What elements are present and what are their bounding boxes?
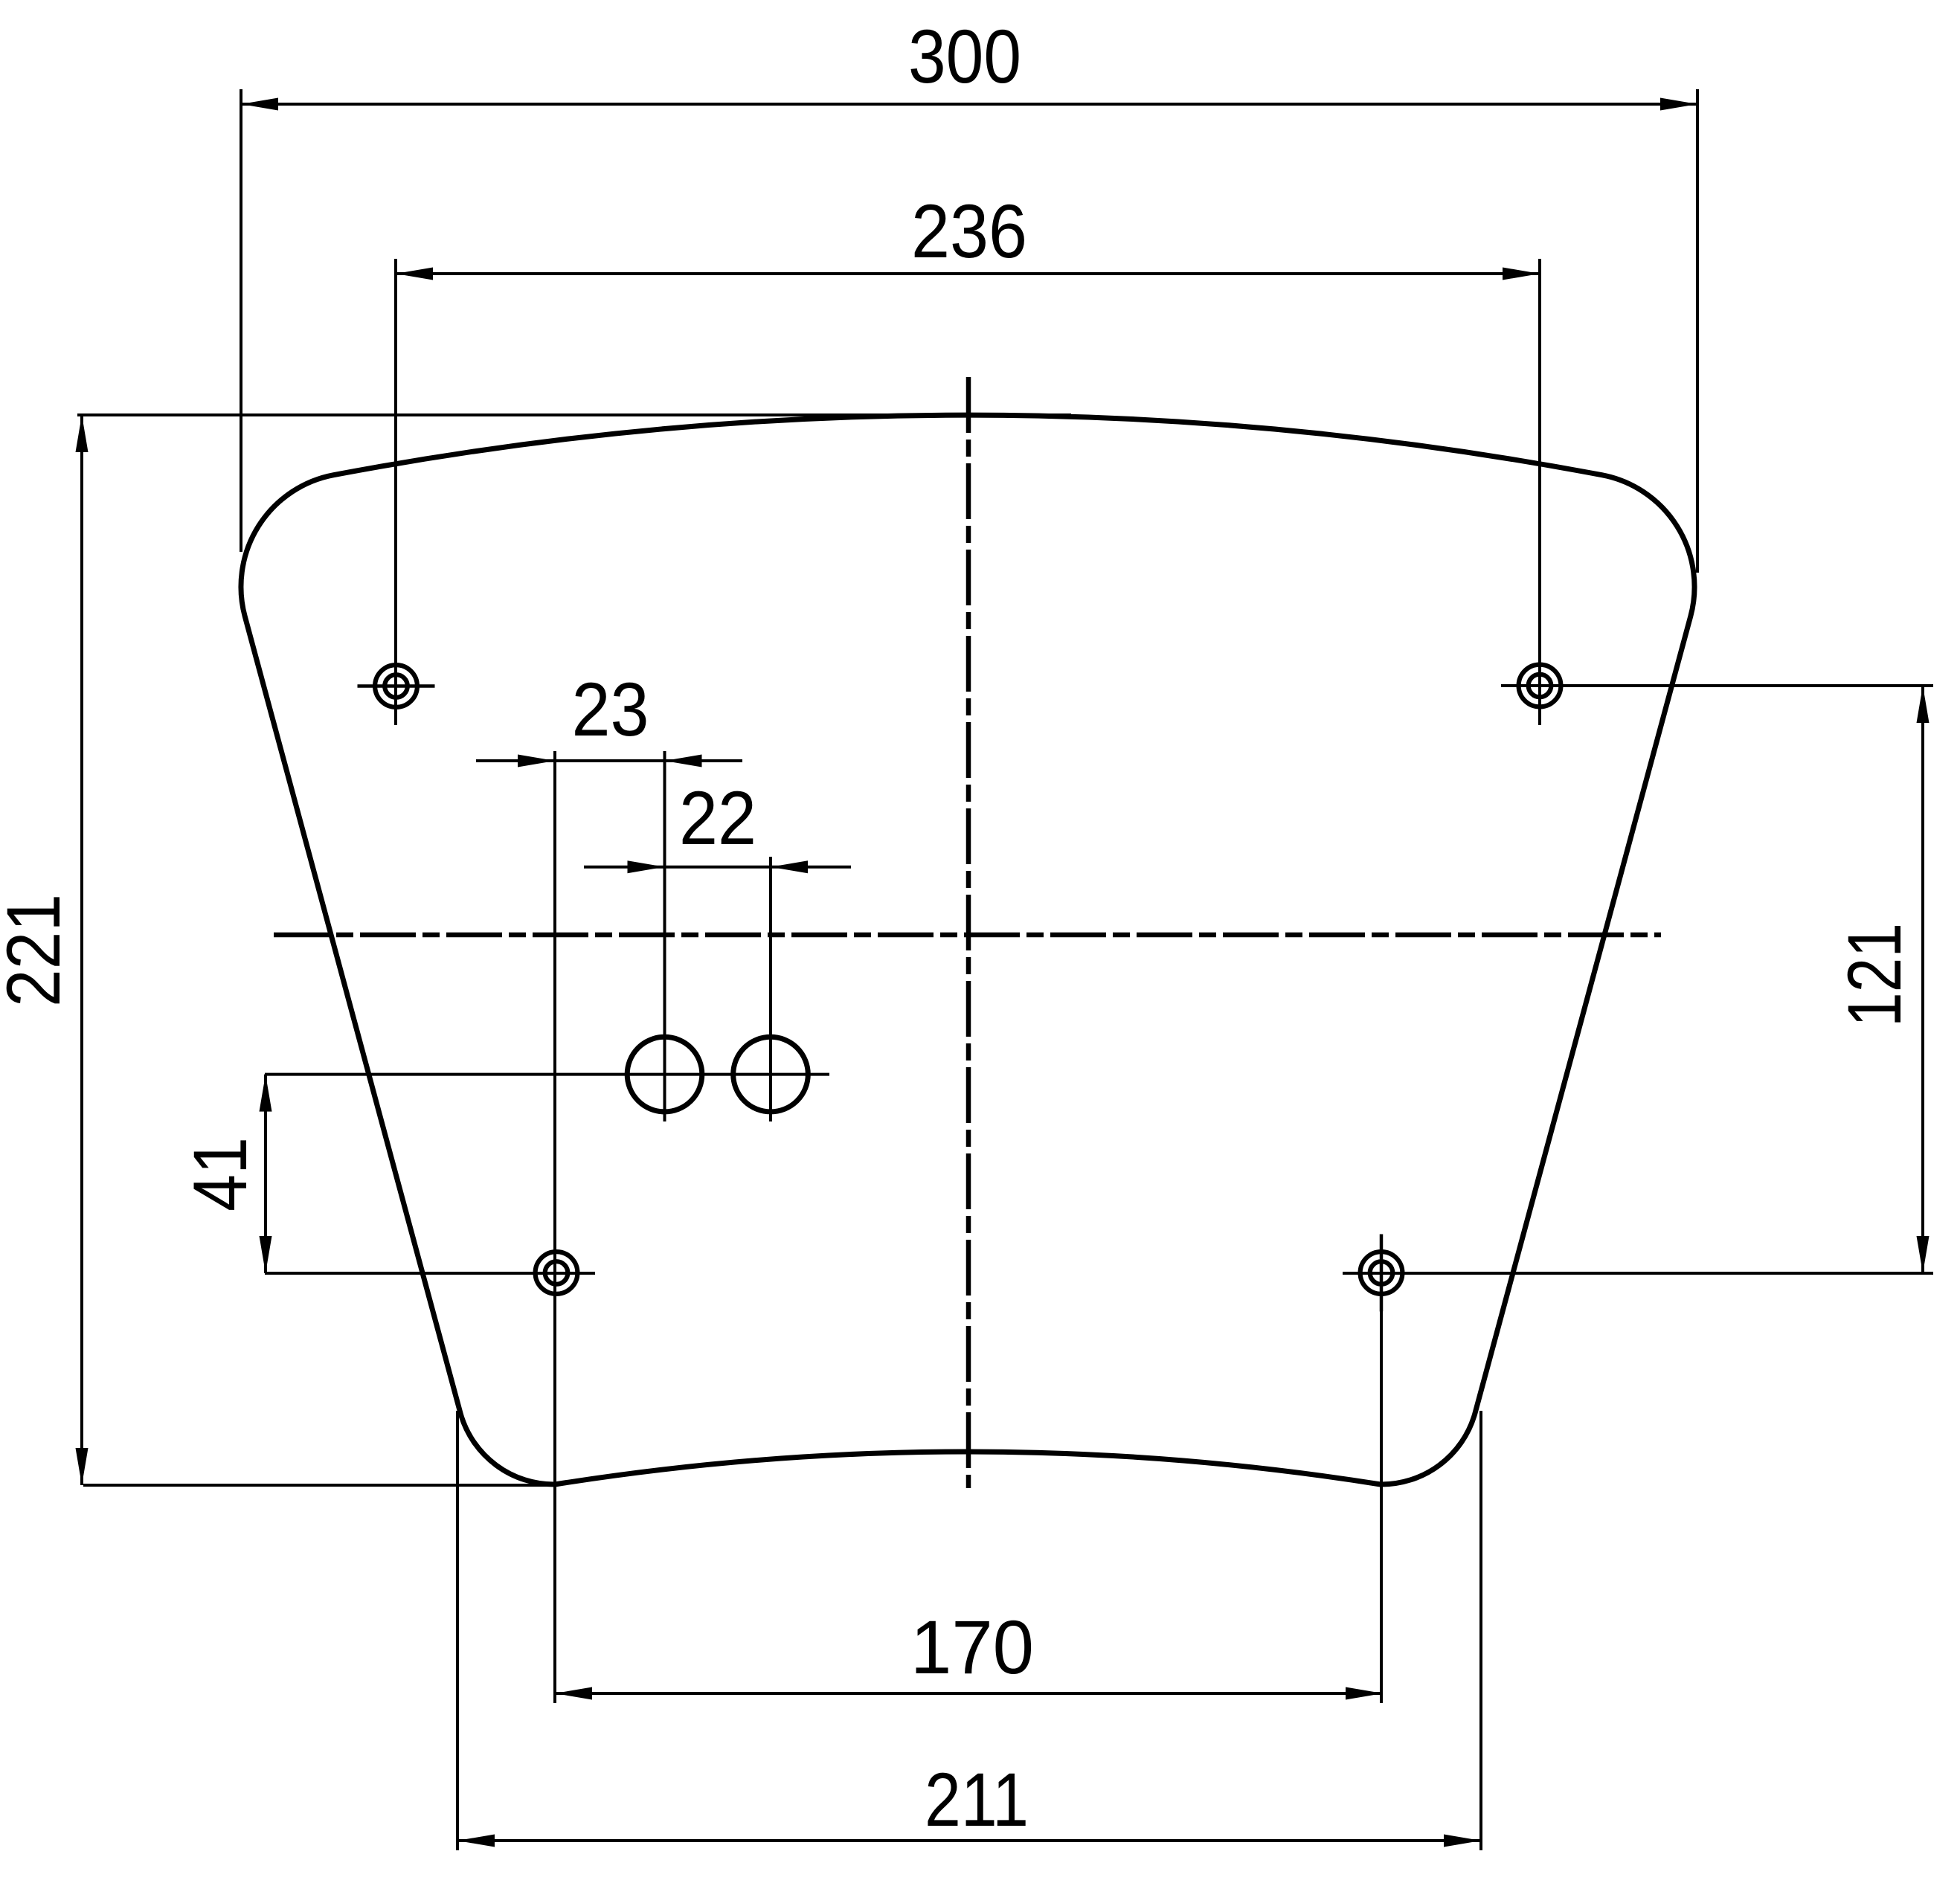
svg-text:211: 211	[925, 1757, 1029, 1842]
svg-text:300: 300	[908, 14, 1021, 99]
svg-text:221: 221	[0, 894, 76, 1007]
svg-text:41: 41	[178, 1137, 263, 1211]
svg-text:236: 236	[911, 189, 1027, 274]
svg-text:170: 170	[910, 1605, 1034, 1690]
svg-text:121: 121	[1832, 923, 1917, 1027]
svg-text:22: 22	[679, 776, 756, 860]
svg-text:23: 23	[572, 667, 649, 752]
